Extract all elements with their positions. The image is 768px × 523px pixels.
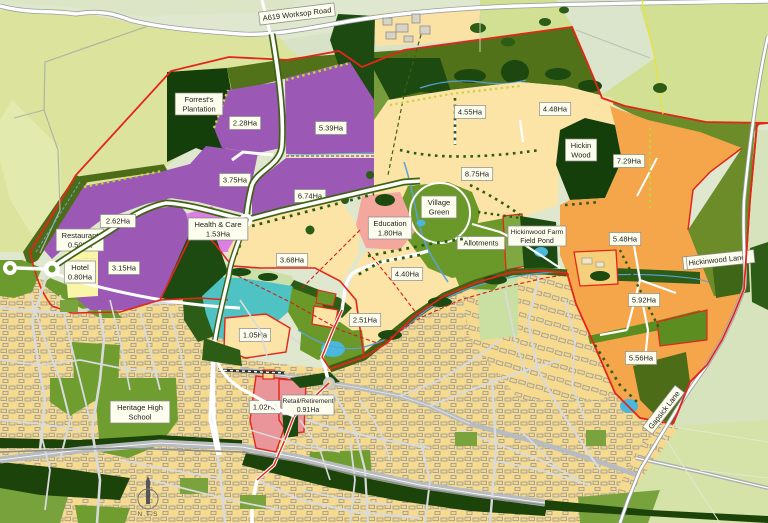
svg-text:5.39Ha: 5.39Ha [319,124,344,133]
svg-text:Field Pond: Field Pond [520,238,554,245]
svg-text:N.T.S: N.T.S [138,511,159,518]
svg-text:0.80Ha: 0.80Ha [68,272,93,281]
svg-text:0.91Ha: 0.91Ha [297,407,320,414]
svg-text:Hickin: Hickin [571,141,591,150]
svg-text:3.15Ha: 3.15Ha [112,264,137,273]
svg-text:1.05Ha: 1.05Ha [243,331,268,340]
svg-text:4.40Ha: 4.40Ha [395,270,420,279]
svg-text:1.53Ha: 1.53Ha [206,229,231,238]
svg-text:7.29Ha: 7.29Ha [617,157,642,166]
svg-text:Heritage High: Heritage High [117,403,163,412]
svg-text:8.75Ha: 8.75Ha [465,170,490,179]
svg-text:1.80Ha: 1.80Ha [378,228,403,237]
svg-text:Forrest's: Forrest's [185,95,214,104]
svg-text:Hickinwood Farm: Hickinwood Farm [511,229,564,236]
svg-text:Village: Village [428,198,450,207]
svg-text:Hotel: Hotel [71,263,89,272]
svg-text:Plantation: Plantation [182,104,215,113]
svg-text:2.62Ha: 2.62Ha [106,217,131,226]
svg-text:2.28Ha: 2.28Ha [233,119,258,128]
svg-text:5.48Ha: 5.48Ha [613,235,638,244]
svg-text:2.51Ha: 2.51Ha [353,316,378,325]
svg-text:Green: Green [429,207,450,216]
svg-text:5.92Ha: 5.92Ha [632,296,657,305]
svg-text:4.48Ha: 4.48Ha [543,105,568,114]
svg-text:4.55Ha: 4.55Ha [458,108,483,117]
svg-text:Retail/Retirement: Retail/Retirement [283,398,334,405]
svg-text:Education: Education [373,219,406,228]
svg-text:Health & Care: Health & Care [194,220,241,229]
svg-text:Wood: Wood [571,150,590,159]
svg-text:5.56Ha: 5.56Ha [629,354,654,363]
svg-text:School: School [129,412,152,421]
svg-text:3.75Ha: 3.75Ha [223,176,248,185]
svg-text:Allotments: Allotments [463,239,498,248]
svg-text:3.68Ha: 3.68Ha [280,256,305,265]
